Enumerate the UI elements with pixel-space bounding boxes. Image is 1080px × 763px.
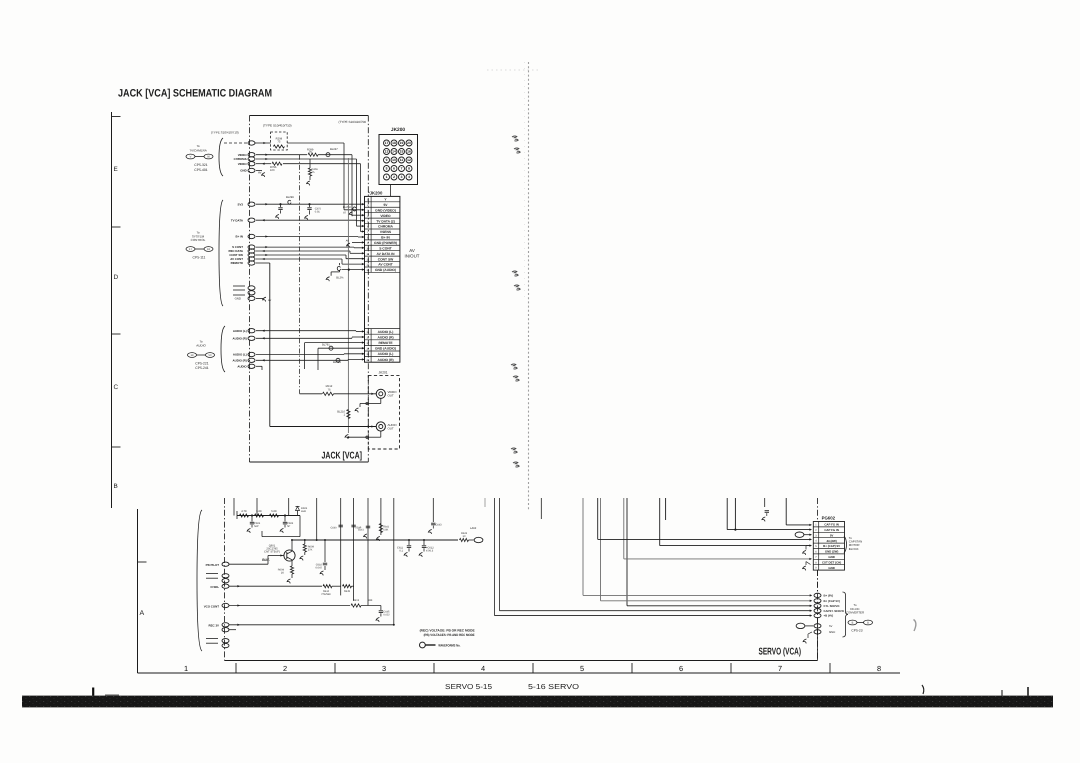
- svg-text:CAP FG IN: CAP FG IN: [824, 523, 839, 527]
- svg-text:AV: AV: [346, 239, 350, 242]
- svg-text:JK201: JK201: [378, 371, 387, 375]
- svg-text:JK200: JK200: [391, 127, 405, 133]
- svg-text:B+ IN: B+ IN: [381, 236, 390, 240]
- svg-text:AV: AV: [409, 248, 415, 253]
- svg-text:CONVERTER: CONVERTER: [846, 611, 864, 615]
- svg-text:CAP FG IN: CAP FG IN: [824, 528, 839, 532]
- svg-text:10: 10: [392, 158, 396, 162]
- svg-text:5: 5: [386, 167, 388, 171]
- svg-text:B: B: [867, 622, 869, 625]
- svg-text:C641: C641: [358, 529, 365, 532]
- svg-text:GND (AUDIO): GND (AUDIO): [375, 268, 396, 272]
- svg-text:5P: 5P: [287, 525, 290, 528]
- svg-text:IN/OUT: IN/OUT: [405, 254, 420, 259]
- svg-text:20: 20: [407, 141, 411, 145]
- svg-text:CNT STB (F): CNT STB (F): [264, 550, 280, 553]
- svg-text:AV DATA IN: AV DATA IN: [376, 252, 395, 256]
- svg-text:GND: GND: [828, 566, 834, 570]
- svg-text:SERVO (VCA): SERVO (VCA): [759, 647, 802, 658]
- svg-text:B: B: [852, 622, 854, 625]
- svg-text:AUDIO (L): AUDIO (L): [378, 330, 394, 334]
- svg-text:PB PILOT: PB PILOT: [206, 563, 220, 567]
- svg-text:OUT: OUT: [388, 394, 394, 398]
- svg-text:B: B: [114, 483, 118, 490]
- svg-text:BL299: BL299: [286, 196, 294, 199]
- svg-text:GND: GND: [235, 297, 241, 301]
- svg-text:(TYPE S10/410/700: (TYPE S10/410/700: [339, 120, 367, 124]
- svg-text:27K/56K: 27K/56K: [321, 593, 331, 596]
- svg-text:(TYPE S10/410/710): (TYPE S10/410/710): [211, 130, 239, 134]
- svg-text:17: 17: [385, 141, 389, 145]
- svg-text:13: 13: [385, 150, 389, 154]
- svg-text:19: 19: [400, 141, 404, 145]
- svg-text:TV DATA: TV DATA: [231, 218, 244, 222]
- svg-text:16: 16: [407, 150, 411, 154]
- svg-text:CONTROL: CONTROL: [191, 238, 206, 242]
- svg-text:0.047: 0.047: [316, 566, 323, 569]
- svg-text:14: 14: [392, 150, 396, 154]
- svg-text:7: 7: [401, 167, 403, 171]
- svg-text:WAVEFORMS No.: WAVEFORMS No.: [438, 643, 460, 647]
- svg-text:75: 75: [277, 141, 280, 144]
- svg-text:6: 6: [679, 664, 683, 673]
- svg-text:8: 8: [408, 167, 410, 171]
- svg-text:TV DATA (2): TV DATA (2): [376, 219, 395, 223]
- svg-text:REMOTE: REMOTE: [378, 341, 393, 345]
- svg-text:+B (4V): +B (4V): [824, 614, 834, 618]
- svg-text:CP5-23: CP5-23: [851, 629, 862, 633]
- svg-text:2: 2: [283, 664, 287, 673]
- svg-text:GND (AUDIO): GND (AUDIO): [375, 347, 396, 351]
- svg-text:AV CONT: AV CONT: [378, 263, 393, 267]
- svg-text:VCO CONT: VCO CONT: [204, 604, 219, 608]
- svg-text:CAPST. SERVO: CAPST. SERVO: [824, 609, 845, 613]
- svg-text:AUDIO (R): AUDIO (R): [377, 335, 393, 339]
- svg-text:(PB) VOLTAGES: PB AND REC MODE: (PB) VOLTAGES: PB AND REC MODE: [424, 633, 475, 637]
- svg-text:5: 5: [580, 664, 584, 673]
- svg-text:8: 8: [877, 664, 881, 673]
- svg-text:B+ (CAP 5V): B+ (CAP 5V): [824, 599, 840, 603]
- svg-text:CP5-401: CP5-401: [194, 168, 207, 172]
- svg-text:1: 1: [386, 175, 388, 179]
- svg-text:4: 4: [408, 175, 410, 179]
- svg-text:9: 9: [386, 158, 388, 162]
- svg-text:VIDEO: VIDEO: [380, 214, 391, 218]
- svg-text:GND (VIDEO): GND (VIDEO): [375, 208, 396, 212]
- svg-text:E: E: [114, 166, 118, 173]
- svg-text:R645: R645: [344, 590, 351, 593]
- svg-text:7: 7: [778, 664, 782, 673]
- svg-text:5V: 5V: [829, 624, 833, 628]
- svg-text:LED: LED: [301, 510, 306, 513]
- svg-text:AUDIO (R): AUDIO (R): [233, 358, 247, 362]
- svg-text:AUDIO (L): AUDIO (L): [378, 352, 394, 356]
- svg-text:CHROMA: CHROMA: [378, 225, 393, 229]
- svg-text:JACK [VCA]: JACK [VCA]: [322, 450, 363, 461]
- svg-text:12: 12: [407, 158, 411, 162]
- svg-text:(TYPE S10/410/710): (TYPE S10/410/710): [263, 124, 292, 128]
- svg-text:GND (POWER): GND (POWER): [374, 241, 397, 245]
- svg-text:SERVO 5-15: SERVO 5-15: [445, 682, 492, 691]
- svg-text:R613: R613: [353, 599, 360, 602]
- svg-text:(REC) VOLTAGE: PB OR REC MODE: (REC) VOLTAGE: PB OR REC MODE: [420, 628, 475, 632]
- svg-text:AUDIO (R): AUDIO (R): [233, 336, 247, 340]
- svg-text:44 (2W): 44 (2W): [826, 539, 836, 543]
- svg-text:CTL SERVO: CTL SERVO: [824, 604, 841, 608]
- svg-text:N SEL: N SEL: [210, 585, 219, 589]
- svg-text:56P: 56P: [254, 525, 259, 528]
- svg-text:1: 1: [184, 664, 188, 673]
- svg-text:1K: 1K: [281, 571, 284, 574]
- svg-text:LA62: LA62: [470, 527, 477, 530]
- svg-text:TV/CAMERA: TV/CAMERA: [189, 148, 207, 152]
- svg-text:B+ IN: B+ IN: [236, 235, 243, 239]
- svg-text:VSENS: VSENS: [380, 230, 392, 234]
- svg-text:GND: GND: [240, 169, 246, 173]
- svg-text:SV3: SV3: [238, 202, 244, 206]
- svg-text:100: 100: [270, 169, 275, 172]
- svg-text:GND: GND: [829, 630, 835, 634]
- svg-text:2: 2: [393, 175, 395, 179]
- svg-text:VIDEO: VIDEO: [238, 162, 248, 166]
- svg-text:B+ (6V): B+ (6V): [824, 594, 834, 598]
- svg-text:AUDIO (R): AUDIO (R): [377, 358, 393, 362]
- svg-text:5.6K: 5.6K: [271, 510, 277, 513]
- svg-text:AUDIO: AUDIO: [196, 344, 206, 348]
- svg-text:OUT: OUT: [388, 426, 394, 430]
- svg-text:18: 18: [392, 141, 396, 145]
- svg-text:CP5-241: CP5-241: [195, 366, 208, 370]
- svg-text:S CONT: S CONT: [379, 246, 391, 250]
- svg-text:BL791: BL791: [322, 343, 330, 346]
- svg-text:BL3%: BL3%: [336, 277, 344, 280]
- svg-text:27K: 27K: [308, 548, 313, 551]
- svg-text:0.022: 0.022: [383, 613, 390, 616]
- svg-text:6: 6: [393, 167, 395, 171]
- svg-text:BLOCK: BLOCK: [849, 547, 859, 551]
- svg-text:C643: C643: [436, 523, 443, 526]
- svg-text:BUF.: BUF.: [262, 558, 270, 562]
- svg-text:*JK200: *JK200: [368, 190, 383, 195]
- svg-text:5V: 5V: [830, 533, 834, 537]
- svg-text:JACK [VCA] SCHEMATIC DIAGRAM: JACK [VCA] SCHEMATIC DIAGRAM: [118, 88, 272, 100]
- svg-text:D: D: [114, 274, 119, 281]
- svg-text:3: 3: [382, 664, 386, 673]
- svg-text:0.1: 0.1: [399, 549, 403, 552]
- svg-text:REMOTE: REMOTE: [231, 261, 243, 265]
- svg-text:11: 11: [400, 158, 404, 162]
- svg-text:V: V: [190, 156, 192, 159]
- svg-text:AUDIO (L): AUDIO (L): [233, 353, 247, 357]
- svg-text:CP5-111: CP5-111: [193, 255, 206, 259]
- svg-text:C: C: [114, 384, 119, 391]
- svg-text:15: 15: [400, 150, 404, 154]
- svg-text:75: 75: [309, 151, 312, 154]
- svg-text:4.7K: 4.7K: [241, 510, 247, 513]
- svg-text:BL298: BL298: [343, 206, 351, 209]
- svg-text:PG602: PG602: [822, 516, 836, 521]
- svg-text:75: 75: [327, 387, 331, 391]
- svg-text:REC 3V: REC 3V: [209, 624, 220, 628]
- svg-text:A: A: [140, 610, 145, 617]
- svg-text:AV: AV: [268, 299, 272, 302]
- svg-text:6.8K: 6.8K: [383, 528, 388, 531]
- svg-text:AUDIO: AUDIO: [237, 364, 247, 368]
- svg-text:CST DET (CH): CST DET (CH): [822, 560, 841, 564]
- svg-text:C640: C640: [331, 527, 338, 530]
- svg-text:0.01: 0.01: [315, 210, 321, 213]
- svg-text:47/6.3: 47/6.3: [426, 549, 434, 552]
- svg-text:CHROMA: CHROMA: [234, 157, 248, 161]
- svg-text:5-16 SERVO: 5-16 SERVO: [528, 682, 579, 691]
- svg-text:4: 4: [481, 664, 485, 673]
- svg-text:CONT SW: CONT SW: [378, 257, 394, 261]
- svg-text:33K: 33K: [368, 599, 373, 602]
- svg-text:CP5-221: CP5-221: [195, 361, 208, 365]
- svg-text:GND: GND: [828, 555, 834, 559]
- svg-text:3: 3: [401, 175, 403, 179]
- svg-text:AUDIO (L): AUDIO (L): [233, 329, 247, 333]
- svg-text:AV: AV: [258, 170, 262, 174]
- svg-text:GND (2W): GND (2W): [825, 550, 839, 554]
- svg-text:CP5-321: CP5-321: [194, 163, 207, 167]
- svg-text:BL247: BL247: [330, 148, 338, 151]
- svg-text:B+ (CAP) 9V: B+ (CAP) 9V: [823, 544, 840, 548]
